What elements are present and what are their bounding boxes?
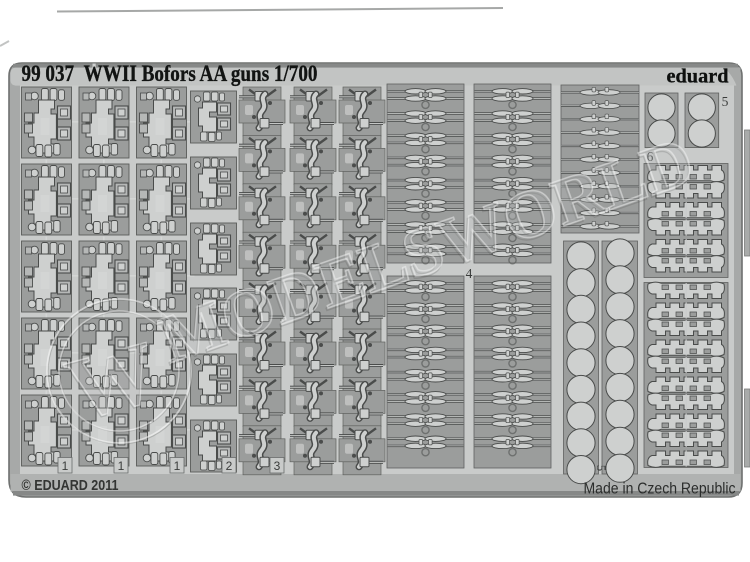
svg-text:3: 3	[274, 459, 281, 473]
svg-text:2: 2	[226, 459, 233, 473]
svg-text:© EDUARD 2011: © EDUARD 2011	[22, 478, 119, 494]
svg-text:5: 5	[594, 465, 608, 471]
svg-text:eduard: eduard	[667, 66, 729, 88]
svg-text:1: 1	[62, 459, 69, 473]
svg-text:99 037 WWII Bofors AA guns 1/: 99 037 WWII Bofors AA guns 1/700	[22, 61, 318, 86]
svg-text:5: 5	[722, 94, 729, 109]
svg-text:1: 1	[174, 459, 181, 473]
svg-text:1: 1	[118, 459, 125, 473]
svg-text:Made in Czech Republic: Made in Czech Republic	[584, 481, 736, 498]
